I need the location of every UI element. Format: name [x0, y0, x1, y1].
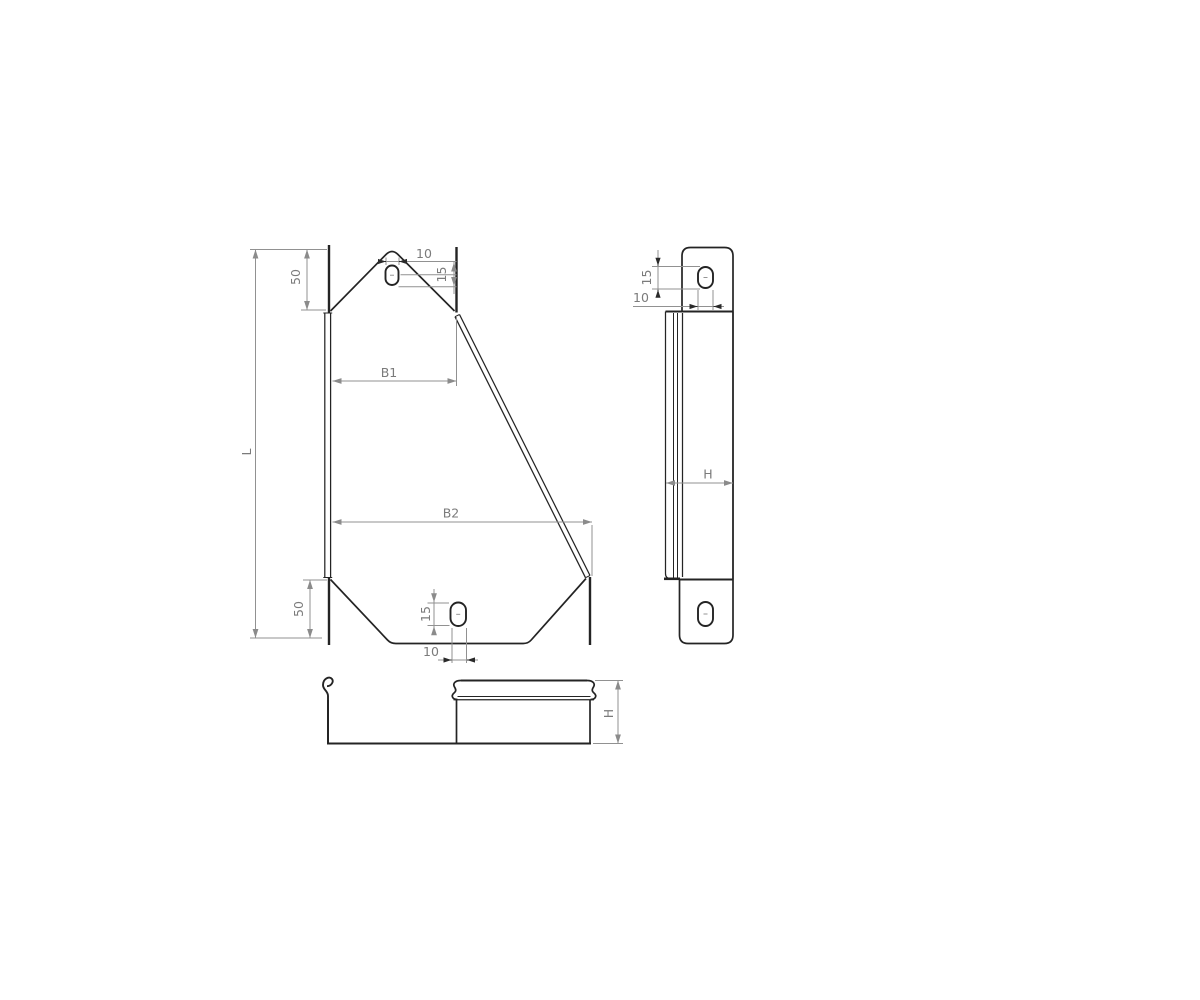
- side-dim-slot-width: 10: [633, 290, 724, 310]
- front-length-label: L: [239, 448, 254, 455]
- bottom-dim-height: H: [593, 681, 623, 744]
- bottom-outline: [323, 678, 596, 744]
- front-bottom-slot-height-label: 15: [418, 606, 433, 622]
- front-bottom-slot-width-label: 10: [423, 644, 439, 659]
- side-slot-height-label: 15: [639, 270, 654, 286]
- side-dim-depth: H: [666, 467, 733, 484]
- side-bottom-slot: [698, 602, 713, 626]
- bottom-height-label: H: [601, 709, 616, 718]
- front-top-slot-height-label: 15: [434, 267, 449, 283]
- front-dim-top-offset: 50: [288, 250, 326, 311]
- front-top-width-label: B1: [381, 365, 398, 380]
- side-top-slot: [698, 267, 713, 288]
- front-dim-bottom-slot: 15 10: [418, 589, 478, 663]
- front-view: L 50 50 B1 B2: [239, 245, 592, 663]
- front-top-offset-label: 50: [288, 269, 303, 285]
- technical-drawing: L 50 50 B1 B2: [0, 0, 1200, 1000]
- bottom-view: H: [323, 678, 623, 744]
- front-top-slot: [386, 266, 399, 286]
- front-dim-top-width: B1: [333, 316, 457, 386]
- front-bottom-width-label: B2: [443, 506, 460, 521]
- side-depth-label: H: [703, 467, 712, 482]
- side-bottom-tab-edge: [680, 580, 734, 644]
- front-bottom-offset-label: 50: [291, 601, 306, 617]
- side-top-tab-edge: [682, 248, 733, 313]
- front-bottom-tab-edge: [331, 579, 587, 644]
- front-outline: [323, 245, 590, 645]
- side-view: 15 10 H: [633, 248, 733, 644]
- front-top-slot-width-label: 10: [416, 246, 432, 261]
- side-slot-width-label: 10: [633, 290, 649, 305]
- front-dim-bottom-width: B2: [333, 506, 593, 577]
- bottom-left-curl: [323, 678, 333, 702]
- front-dim-top-slot: 10 15: [379, 246, 457, 294]
- drawing-canvas: L 50 50 B1 B2: [0, 0, 1200, 1000]
- front-bottom-slot: [451, 603, 467, 627]
- front-dim-bottom-offset: 50: [291, 580, 327, 638]
